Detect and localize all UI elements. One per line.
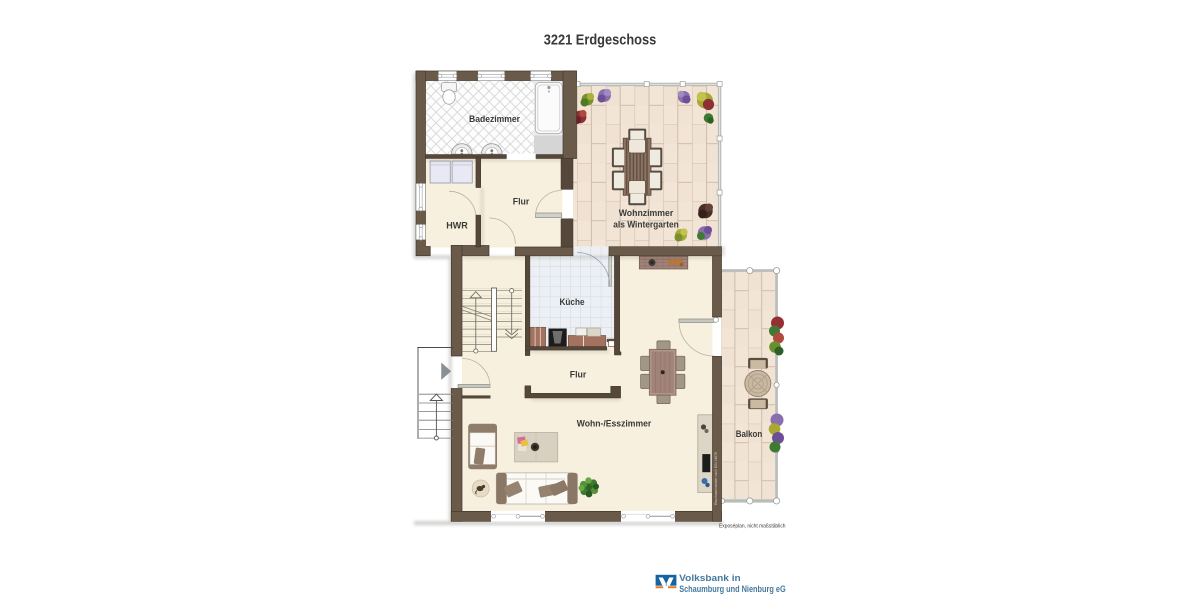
svg-text:Balkon: Balkon bbox=[736, 428, 763, 439]
svg-text:Wohn-/Esszimmer: Wohn-/Esszimmer bbox=[577, 418, 652, 429]
svg-text:Badezimmer: Badezimmer bbox=[469, 113, 520, 124]
svg-text:3221 Erdgeschoss: 3221 Erdgeschoss bbox=[544, 33, 657, 49]
svg-text:Exposéplan, nicht maßstäblich: Exposéplan, nicht maßstäblich bbox=[719, 524, 786, 530]
svg-text:HWR: HWR bbox=[446, 220, 468, 231]
svg-text:Küche: Küche bbox=[560, 296, 585, 307]
svg-text:Rauchwarnmelder nach DIN 14676: Rauchwarnmelder nach DIN 14676 bbox=[714, 452, 718, 505]
svg-text:als Wintergarten: als Wintergarten bbox=[613, 219, 679, 230]
svg-text:Volksbank in: Volksbank in bbox=[679, 573, 741, 583]
svg-text:Wohnzimmer: Wohnzimmer bbox=[619, 207, 674, 218]
svg-text:Flur: Flur bbox=[570, 369, 587, 380]
svg-text:Schaumburg und Nienburg eG: Schaumburg und Nienburg eG bbox=[679, 584, 786, 594]
svg-text:Flur: Flur bbox=[513, 196, 530, 207]
